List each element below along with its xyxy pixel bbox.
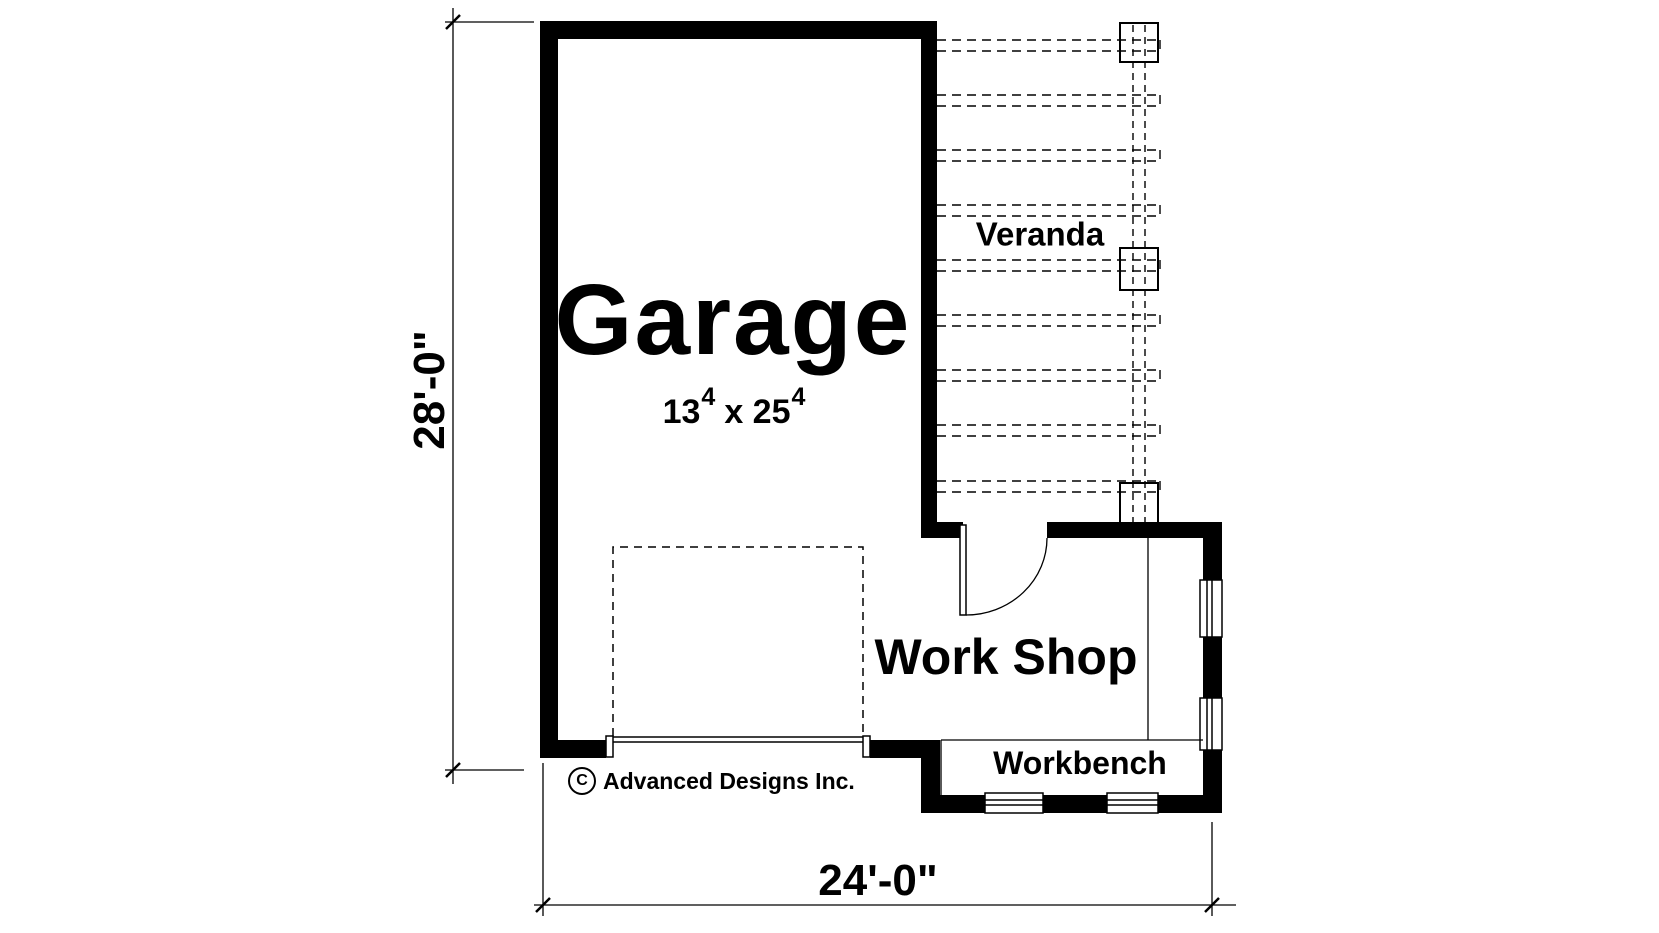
copyright-notice: C Advanced Designs Inc. — [568, 767, 855, 795]
post-top — [1120, 23, 1158, 62]
veranda-room-label: Veranda — [976, 218, 1104, 251]
window-bottom-1 — [985, 793, 1043, 813]
copyright-symbol-icon: C — [568, 767, 596, 795]
post-middle — [1120, 248, 1158, 290]
beam — [937, 95, 1160, 106]
garage-door-track-dashed — [613, 547, 863, 736]
window-right-2 — [1200, 698, 1222, 750]
floor-plan: Garage 134x 254 Veranda Work Shop Workbe… — [0, 0, 1659, 933]
garage-door — [606, 736, 870, 757]
beam — [937, 260, 1160, 271]
walls — [540, 21, 1222, 813]
beam — [937, 425, 1160, 436]
garage-dim-b-sup: 4 — [792, 383, 806, 411]
beam — [937, 40, 1160, 51]
beam — [937, 370, 1160, 381]
garage-dim-a: 13 — [663, 393, 701, 431]
window-right-1 — [1200, 580, 1222, 637]
copyright-text: Advanced Designs Inc. — [603, 768, 855, 795]
beam — [937, 315, 1160, 326]
garage-dim-a-sup: 4 — [701, 383, 715, 411]
post-bottom — [1120, 483, 1158, 523]
veranda-posts — [1120, 23, 1158, 523]
beam — [937, 150, 1160, 161]
veranda-beams — [937, 25, 1160, 522]
garage-dim-mid: x 25 — [724, 393, 790, 431]
overall-depth-dimension: 28'-0" — [408, 330, 452, 449]
garage-dimensions-label: 134x 254 — [663, 391, 806, 429]
garage-room-label: Garage — [555, 270, 912, 370]
window-bottom-2 — [1107, 793, 1158, 813]
beam — [937, 205, 1160, 216]
overall-width-dimension: 24'-0" — [818, 859, 937, 903]
workbench-label: Workbench — [993, 747, 1167, 779]
workshop-room-label: Work Shop — [875, 632, 1138, 682]
entry-door — [960, 525, 1047, 615]
